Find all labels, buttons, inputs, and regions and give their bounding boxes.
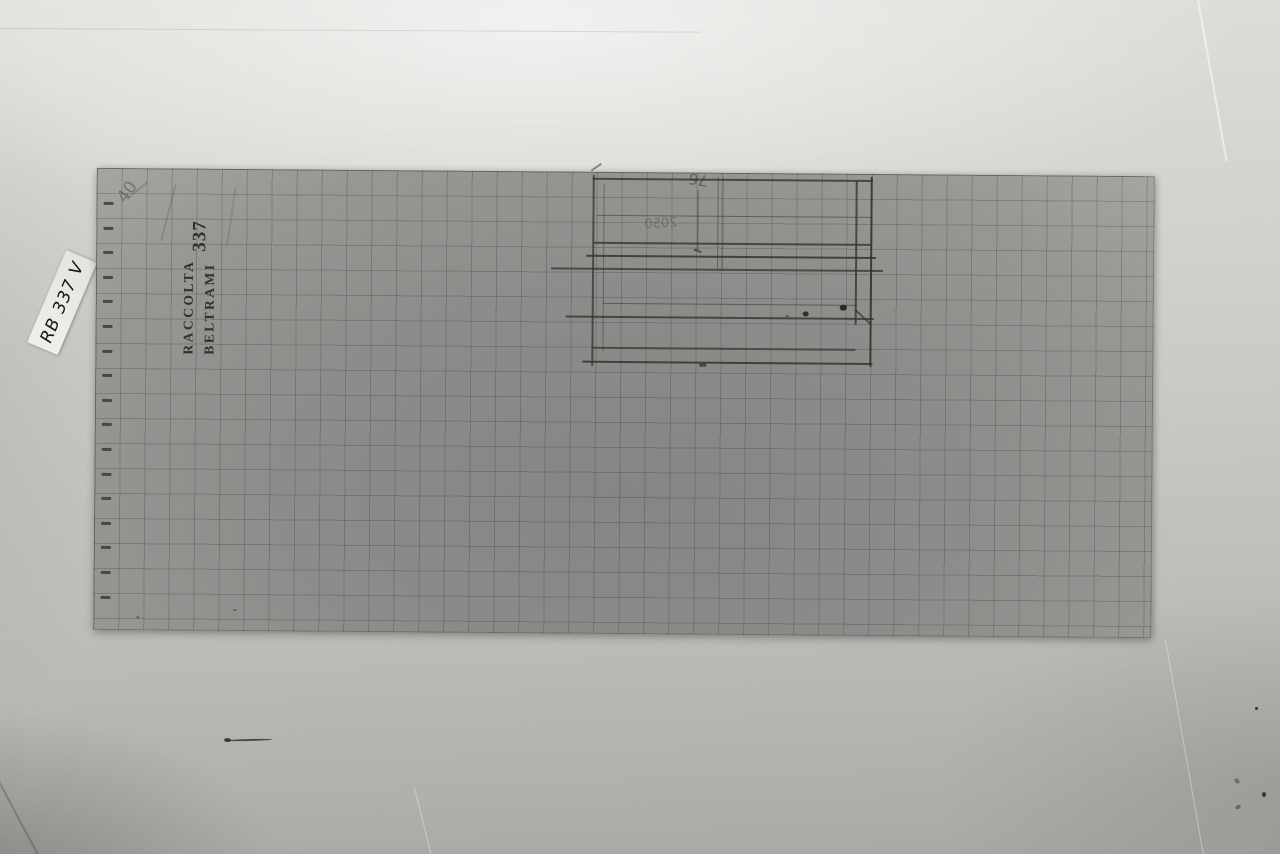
backdrop-fold-highlight bbox=[414, 788, 434, 854]
sketch-line bbox=[699, 364, 706, 367]
sketch-ink-blot bbox=[136, 616, 139, 618]
sketch-line bbox=[566, 316, 874, 320]
graph-paper-sheet: RACCOLTA BELTRAMI 337 76205040 bbox=[93, 168, 1155, 638]
dust-speck bbox=[1233, 778, 1240, 785]
backdrop-fold-shadow bbox=[0, 777, 49, 854]
sketch-line bbox=[593, 242, 871, 246]
dust-speck bbox=[1262, 792, 1266, 797]
archival-label-slip: RB 337 V bbox=[27, 250, 96, 355]
sketch-line bbox=[551, 267, 883, 272]
dust-speck bbox=[224, 738, 231, 742]
pencil-sketch: 76205040 bbox=[93, 168, 1155, 638]
sketch-ink-blot bbox=[233, 609, 236, 611]
sketch-line bbox=[593, 178, 873, 182]
sketch-line bbox=[582, 361, 872, 365]
sketch-ink-blot bbox=[840, 305, 847, 311]
sketch-line bbox=[694, 249, 702, 254]
dust-speck bbox=[226, 738, 272, 741]
faint-pencil-number: 2050 bbox=[644, 215, 678, 232]
sketch-line bbox=[855, 181, 858, 325]
faint-pencil-number: 76 bbox=[688, 169, 710, 190]
sketch-line bbox=[586, 255, 876, 259]
archival-label-text: RB 337 V bbox=[37, 257, 88, 347]
backdrop-fold-shadow bbox=[0, 28, 700, 33]
backdrop-fold-highlight bbox=[1196, 0, 1227, 161]
sketch-line bbox=[591, 163, 602, 171]
backdrop-fold-highlight bbox=[1165, 640, 1206, 854]
faint-pencil-number: 40 bbox=[113, 177, 142, 206]
sketch-line bbox=[591, 175, 595, 366]
sketch-line bbox=[603, 303, 858, 306]
sketch-line bbox=[591, 347, 855, 351]
sketch-line bbox=[596, 215, 870, 218]
dust-speck bbox=[1255, 707, 1258, 710]
sketch-line bbox=[226, 187, 236, 247]
sketch-line bbox=[160, 184, 176, 241]
sketch-line bbox=[697, 191, 698, 251]
photo-backdrop: RB 337 V RACCOLTA BELTRAMI 337 76205040 bbox=[0, 0, 1280, 854]
sketch-ink-blot bbox=[803, 311, 809, 316]
dust-speck bbox=[1234, 804, 1241, 810]
